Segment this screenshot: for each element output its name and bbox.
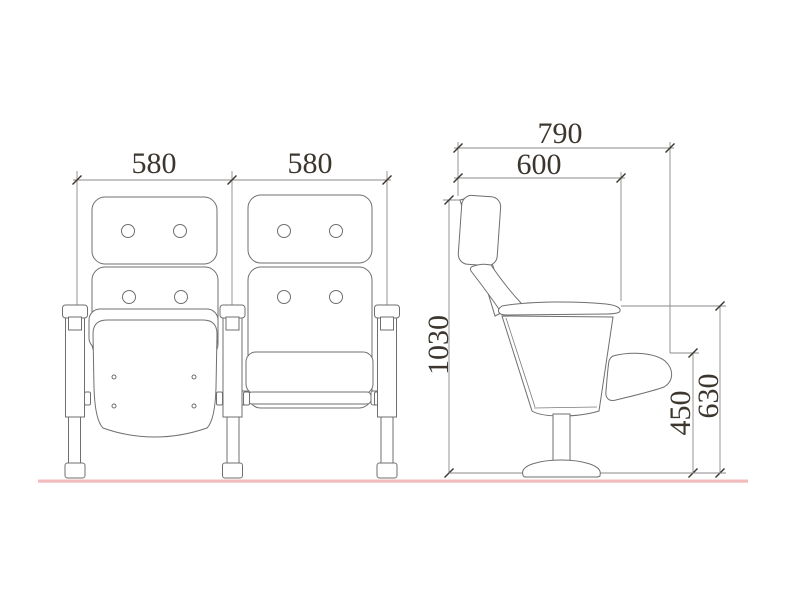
right-chair-front: [239, 195, 380, 408]
leg: [69, 417, 81, 464]
armrest-cap: [375, 305, 400, 318]
foot: [223, 463, 243, 478]
technical-drawing-canvas: 580 580: [0, 0, 800, 600]
armrest-inset: [381, 317, 394, 330]
pedestal-base: [523, 460, 601, 477]
front-view: 580 580: [63, 147, 400, 478]
headrest: [92, 197, 217, 264]
hinge-nub: [244, 392, 250, 405]
dim-label-left-chair-width: 580: [132, 147, 177, 180]
leg: [381, 417, 393, 464]
seat-panel-down: [93, 320, 217, 437]
armrest-stand-left: [63, 305, 91, 478]
chair-side-profile: [458, 195, 672, 477]
leg: [227, 417, 239, 464]
armrest-inset: [226, 317, 239, 330]
dim-label-seat-depth: 600: [517, 148, 562, 181]
armrest-cap: [220, 305, 245, 318]
armrest-side: [606, 353, 672, 400]
dim-label-seat-top-height: 630: [692, 374, 725, 419]
floor-line: [38, 480, 748, 483]
seat-panel-up: [246, 352, 373, 394]
foot: [377, 463, 397, 478]
left-chair-front: [89, 197, 218, 437]
seat-cushion-side: [499, 302, 621, 315]
seat-panel-edge: [248, 392, 371, 404]
hinge-nub: [217, 392, 223, 405]
chair-drawing-svg: 580 580: [0, 0, 800, 600]
armrest-cap: [63, 305, 88, 318]
headrest: [248, 195, 372, 263]
pedestal-column: [553, 414, 570, 462]
armrest-inset: [69, 317, 82, 330]
seat-bucket: [502, 316, 613, 416]
dim-label-right-chair-width: 580: [288, 147, 333, 180]
side-view: 790 600 1030 450 630: [422, 117, 726, 478]
headrest-side: [458, 195, 502, 267]
dim-label-overall-depth: 790: [538, 117, 583, 150]
hinge-nub: [85, 392, 91, 405]
foot: [65, 463, 85, 478]
dim-label-overall-height: 1030: [422, 315, 455, 375]
armrest-stand-right: [375, 305, 400, 478]
